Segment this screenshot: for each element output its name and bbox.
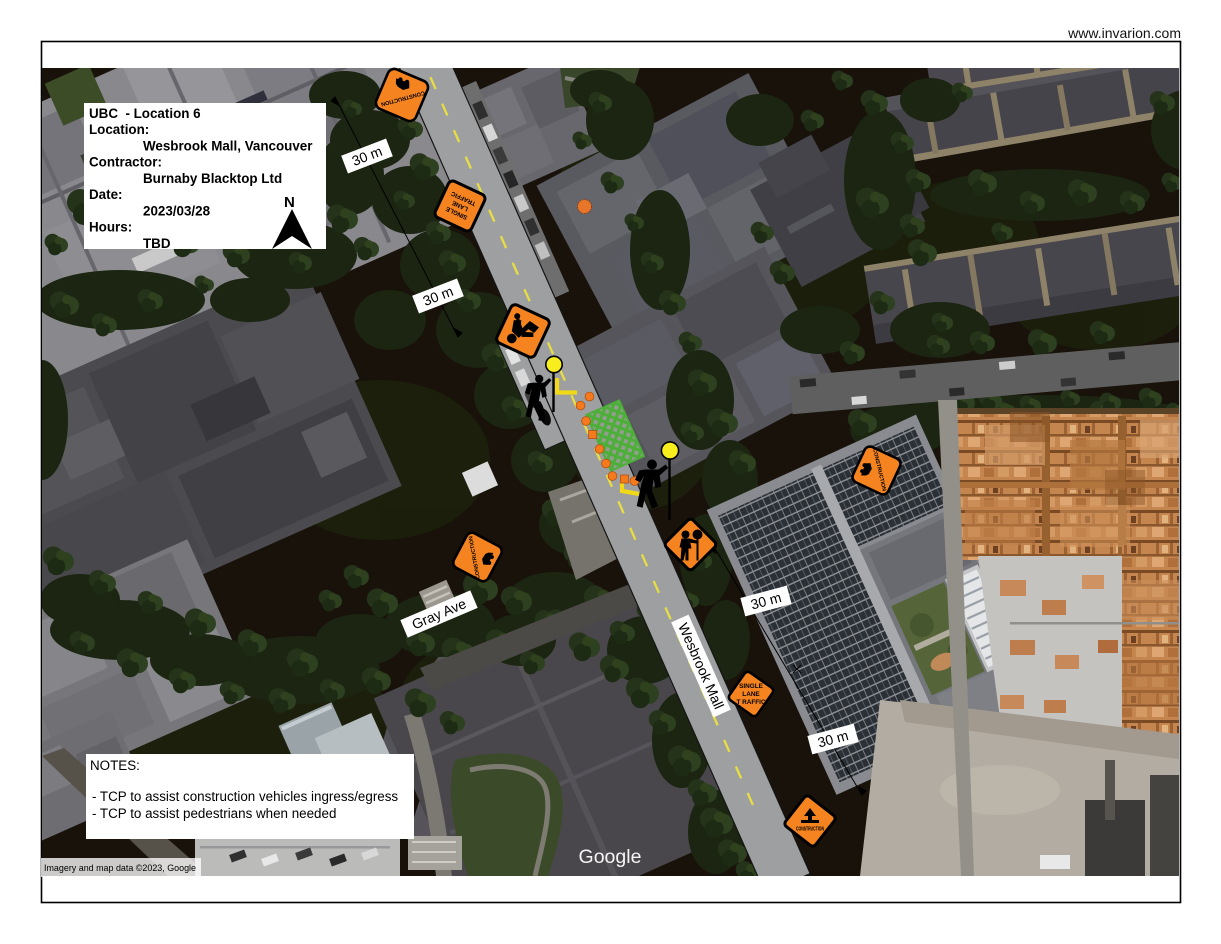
svg-text:Location:: Location: <box>89 122 149 137</box>
svg-text:NOTES:: NOTES: <box>90 758 140 773</box>
svg-text:Date:: Date: <box>89 187 122 202</box>
svg-text:LANE: LANE <box>742 691 760 698</box>
svg-text:Hours:: Hours: <box>89 220 132 235</box>
svg-text:Google: Google <box>579 846 642 868</box>
svg-text:- TCP to assist pedestrians wh: - TCP to assist pedestrians when needed <box>92 806 336 821</box>
svg-text:- TCP to assist construction v: - TCP to assist construction vehicles in… <box>92 789 398 804</box>
svg-text:SINGLE: SINGLE <box>739 683 764 690</box>
svg-text:CONSTRUCTION: CONSTRUCTION <box>796 827 824 833</box>
svg-text:N: N <box>284 194 295 211</box>
svg-text:UBC - Location 6: UBC - Location 6 <box>89 106 201 121</box>
svg-text:www.invarion.com: www.invarion.com <box>1067 25 1181 41</box>
svg-text:Wesbrook Mall, Vancouver: Wesbrook Mall, Vancouver <box>143 139 313 154</box>
svg-text:Burnaby Blacktop Ltd: Burnaby Blacktop Ltd <box>143 171 282 186</box>
svg-text:Contractor:: Contractor: <box>89 155 162 170</box>
svg-text:Imagery and map data ©2023, Go: Imagery and map data ©2023, Google <box>44 863 196 873</box>
svg-text:T RAFFIC: T RAFFIC <box>736 699 765 706</box>
svg-text:TBD: TBD <box>143 236 171 251</box>
svg-text:2023/03/28: 2023/03/28 <box>143 204 211 219</box>
